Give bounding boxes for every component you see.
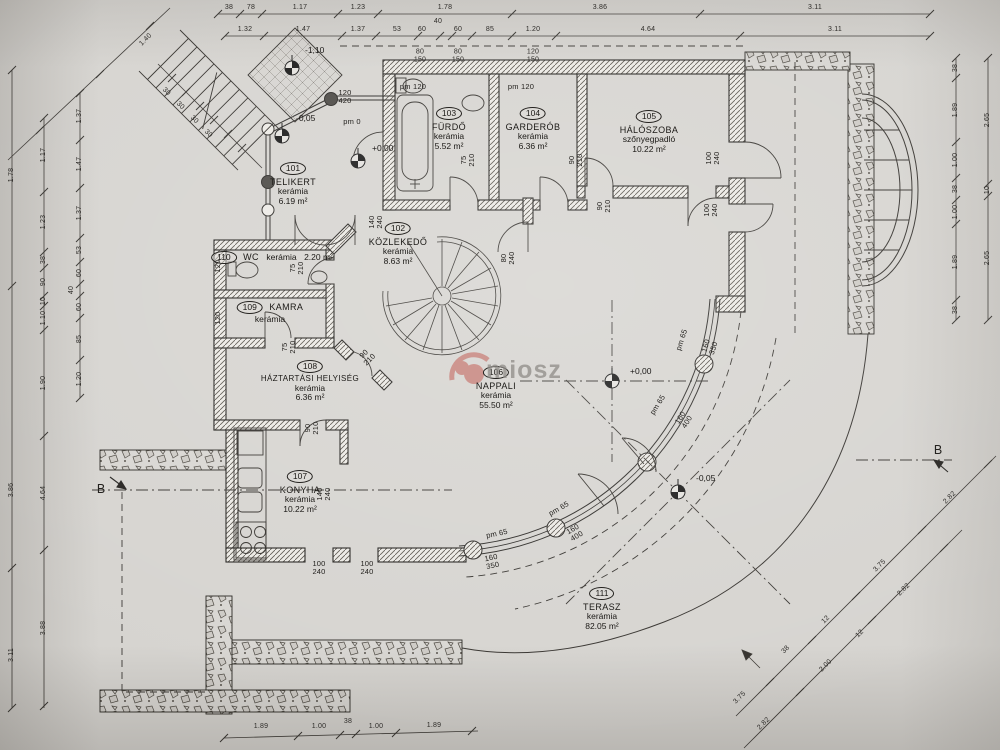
- room-number: 103: [436, 107, 462, 120]
- dim-label: 1.89: [427, 722, 441, 730]
- dim-label: 1.37: [351, 26, 365, 34]
- dim-label: 1.20: [76, 372, 84, 386]
- dim-label: 1.78: [8, 168, 16, 182]
- dim-label: 1.89: [952, 103, 960, 117]
- dim-label: 3.86: [593, 4, 607, 12]
- door-size-label: 90 210: [568, 153, 584, 166]
- room-label-109: 109 KAMRA kerámia: [237, 297, 304, 324]
- level-mark: +0,00: [630, 366, 652, 376]
- room-area: 6.19 m²: [270, 197, 316, 207]
- dim-label: 53: [393, 26, 401, 34]
- dim-label: 38: [225, 4, 233, 12]
- dim-label: 38: [952, 64, 960, 72]
- door-size-label: 140 240: [316, 487, 332, 500]
- room-label-105: 105 HÁLÓSZOBA szőnyegpadló 10.22 m²: [620, 106, 679, 154]
- room-number: 104: [520, 107, 546, 120]
- dim-label: 3.11: [808, 4, 822, 12]
- kitchen-sink: [238, 468, 262, 488]
- dim-label: 60: [76, 303, 84, 311]
- dim-label: 38: [40, 256, 48, 264]
- room-number: 109: [237, 301, 263, 314]
- floorplan-sheet: 101 TELIKERT kerámia 6.19 m² 102 KÖZLEKE…: [0, 0, 1000, 750]
- level-mark: +0,00: [372, 143, 394, 153]
- room-area: 5.52 m²: [432, 142, 466, 152]
- window-size-label: 120: [214, 259, 222, 272]
- dim-label: 85: [76, 335, 84, 343]
- dim-label: 3.86: [8, 483, 16, 497]
- door-size-label: 75 210: [289, 261, 305, 274]
- room-area: 10.22 m²: [620, 145, 679, 155]
- window-size-label: 120 150: [527, 48, 539, 63]
- dim-label: 1.17: [293, 4, 307, 12]
- window-size-label: 120: [214, 311, 222, 324]
- dim-label: 85: [486, 26, 494, 34]
- dim-label: 40: [68, 286, 76, 294]
- dim-label: 38: [952, 306, 960, 314]
- dim-label: 1.00: [952, 205, 960, 219]
- room-area: 2.20 m²: [304, 252, 333, 262]
- dim-label: 3.11: [828, 26, 842, 34]
- room-number: 108: [297, 360, 323, 373]
- section-mark-left: B: [97, 482, 105, 496]
- dim-label: 2.65: [984, 113, 992, 127]
- dim-label: 1.17: [40, 148, 48, 162]
- parapet-label: pm 120: [508, 83, 534, 91]
- dim-label: 3.11: [8, 648, 16, 662]
- washbasin-110: [311, 271, 327, 283]
- dim-label: 1.23: [40, 215, 48, 229]
- dim-label: 1.78: [438, 4, 452, 12]
- dim-label: 3.88: [40, 621, 48, 635]
- room-label-110: 110 WC kerámia 2.20 m²: [211, 247, 333, 265]
- room-label-103: 103 FÜRDŐ kerámia 5.52 m²: [432, 103, 466, 151]
- dim-label: 38: [344, 718, 352, 726]
- dim-label: 1.47: [76, 157, 84, 171]
- dim-label: 1.37: [76, 206, 84, 220]
- dim-label: 1.10: [40, 311, 48, 325]
- room-label-101: 101 TELIKERT kerámia 6.19 m²: [270, 158, 316, 206]
- dim-label: 40: [434, 18, 442, 26]
- room-number: 106: [483, 366, 509, 379]
- level-mark: -0,05: [696, 473, 715, 483]
- dim-label: 10: [40, 297, 48, 305]
- room-area: 8.63 m²: [369, 257, 428, 267]
- room-area: 82.05 m²: [583, 622, 621, 632]
- parapet-label: pm 120: [400, 83, 426, 91]
- window-size-label: 80 150: [452, 48, 464, 63]
- dim-label: 60: [454, 26, 462, 34]
- parapet-label: pm 0: [343, 118, 360, 126]
- dim-label: 1.89: [254, 723, 268, 731]
- room-name: WC: [243, 252, 259, 262]
- room-number: 105: [636, 110, 662, 123]
- room-number: 101: [280, 162, 306, 175]
- door-size-label: 75 210: [460, 153, 476, 166]
- door-size-label: 100 240: [705, 151, 721, 164]
- level-mark: -0,05: [296, 113, 315, 123]
- dim-label: 60: [418, 26, 426, 34]
- dim-label: 2.65: [984, 251, 992, 265]
- room-area: 6.36 m²: [506, 142, 561, 152]
- level-mark: -1,10: [305, 45, 324, 55]
- dim-label: 4.64: [40, 486, 48, 500]
- dim-label: 78: [247, 4, 255, 12]
- room-number: 107: [287, 470, 313, 483]
- room-floor: kerámia: [237, 315, 304, 325]
- dim-label: 1.32: [238, 26, 252, 34]
- dim-label: 90: [40, 278, 48, 286]
- dim-label: 1.00: [312, 723, 326, 731]
- room-area: 10.22 m²: [280, 505, 320, 515]
- dim-label: 38: [952, 185, 960, 193]
- terrace-edge: [462, 311, 868, 653]
- door-size-label: 80 240: [500, 251, 516, 264]
- room-label-106: 106 NAPPALI kerámia 55.50 m²: [476, 362, 516, 410]
- room-area: 6.36 m²: [261, 393, 359, 403]
- dim-label: 1.89: [952, 255, 960, 269]
- door-size-label: 100 240: [703, 203, 719, 216]
- dim-label: 1.37: [76, 109, 84, 123]
- dim-label: 1.47: [296, 26, 310, 34]
- dim-label: 1.20: [526, 26, 540, 34]
- window-size-label: 100 240: [312, 560, 325, 576]
- dim-label: 10: [984, 186, 992, 194]
- room-label-104: 104 GARDERÓB kerámia 6.36 m²: [506, 103, 561, 151]
- dim-label: 1.23: [351, 4, 365, 12]
- room-number: 111: [590, 587, 615, 600]
- window-size-label: 80 150: [414, 48, 426, 63]
- dim-label: 53: [76, 246, 84, 254]
- door-size-label: 140 240: [368, 215, 384, 228]
- glazing-size-label: 120 420: [338, 89, 351, 105]
- room-number: 102: [385, 222, 411, 235]
- room-label-108: 108 HÁZTARTÁSI HELYISÉG kerámia 6.36 m²: [261, 356, 359, 403]
- room-name: KAMRA: [269, 302, 303, 312]
- door-size-label: 90 210: [596, 199, 612, 212]
- door-size-label: 90 210: [304, 421, 320, 434]
- room-label-111: 111 TERASZ kerámia 82.05 m²: [583, 583, 621, 631]
- window-size-label: 100 240: [360, 560, 373, 576]
- dim-label: 1.00: [952, 153, 960, 167]
- room-area: 55.50 m²: [476, 401, 516, 411]
- dim-label: 4.64: [641, 26, 655, 34]
- dim-label: 60: [76, 269, 84, 277]
- dim-label: 1.90: [40, 376, 48, 390]
- section-mark-right: B: [934, 443, 942, 457]
- dim-label: 1.00: [369, 723, 383, 731]
- door-size-label: 75 210: [281, 340, 297, 353]
